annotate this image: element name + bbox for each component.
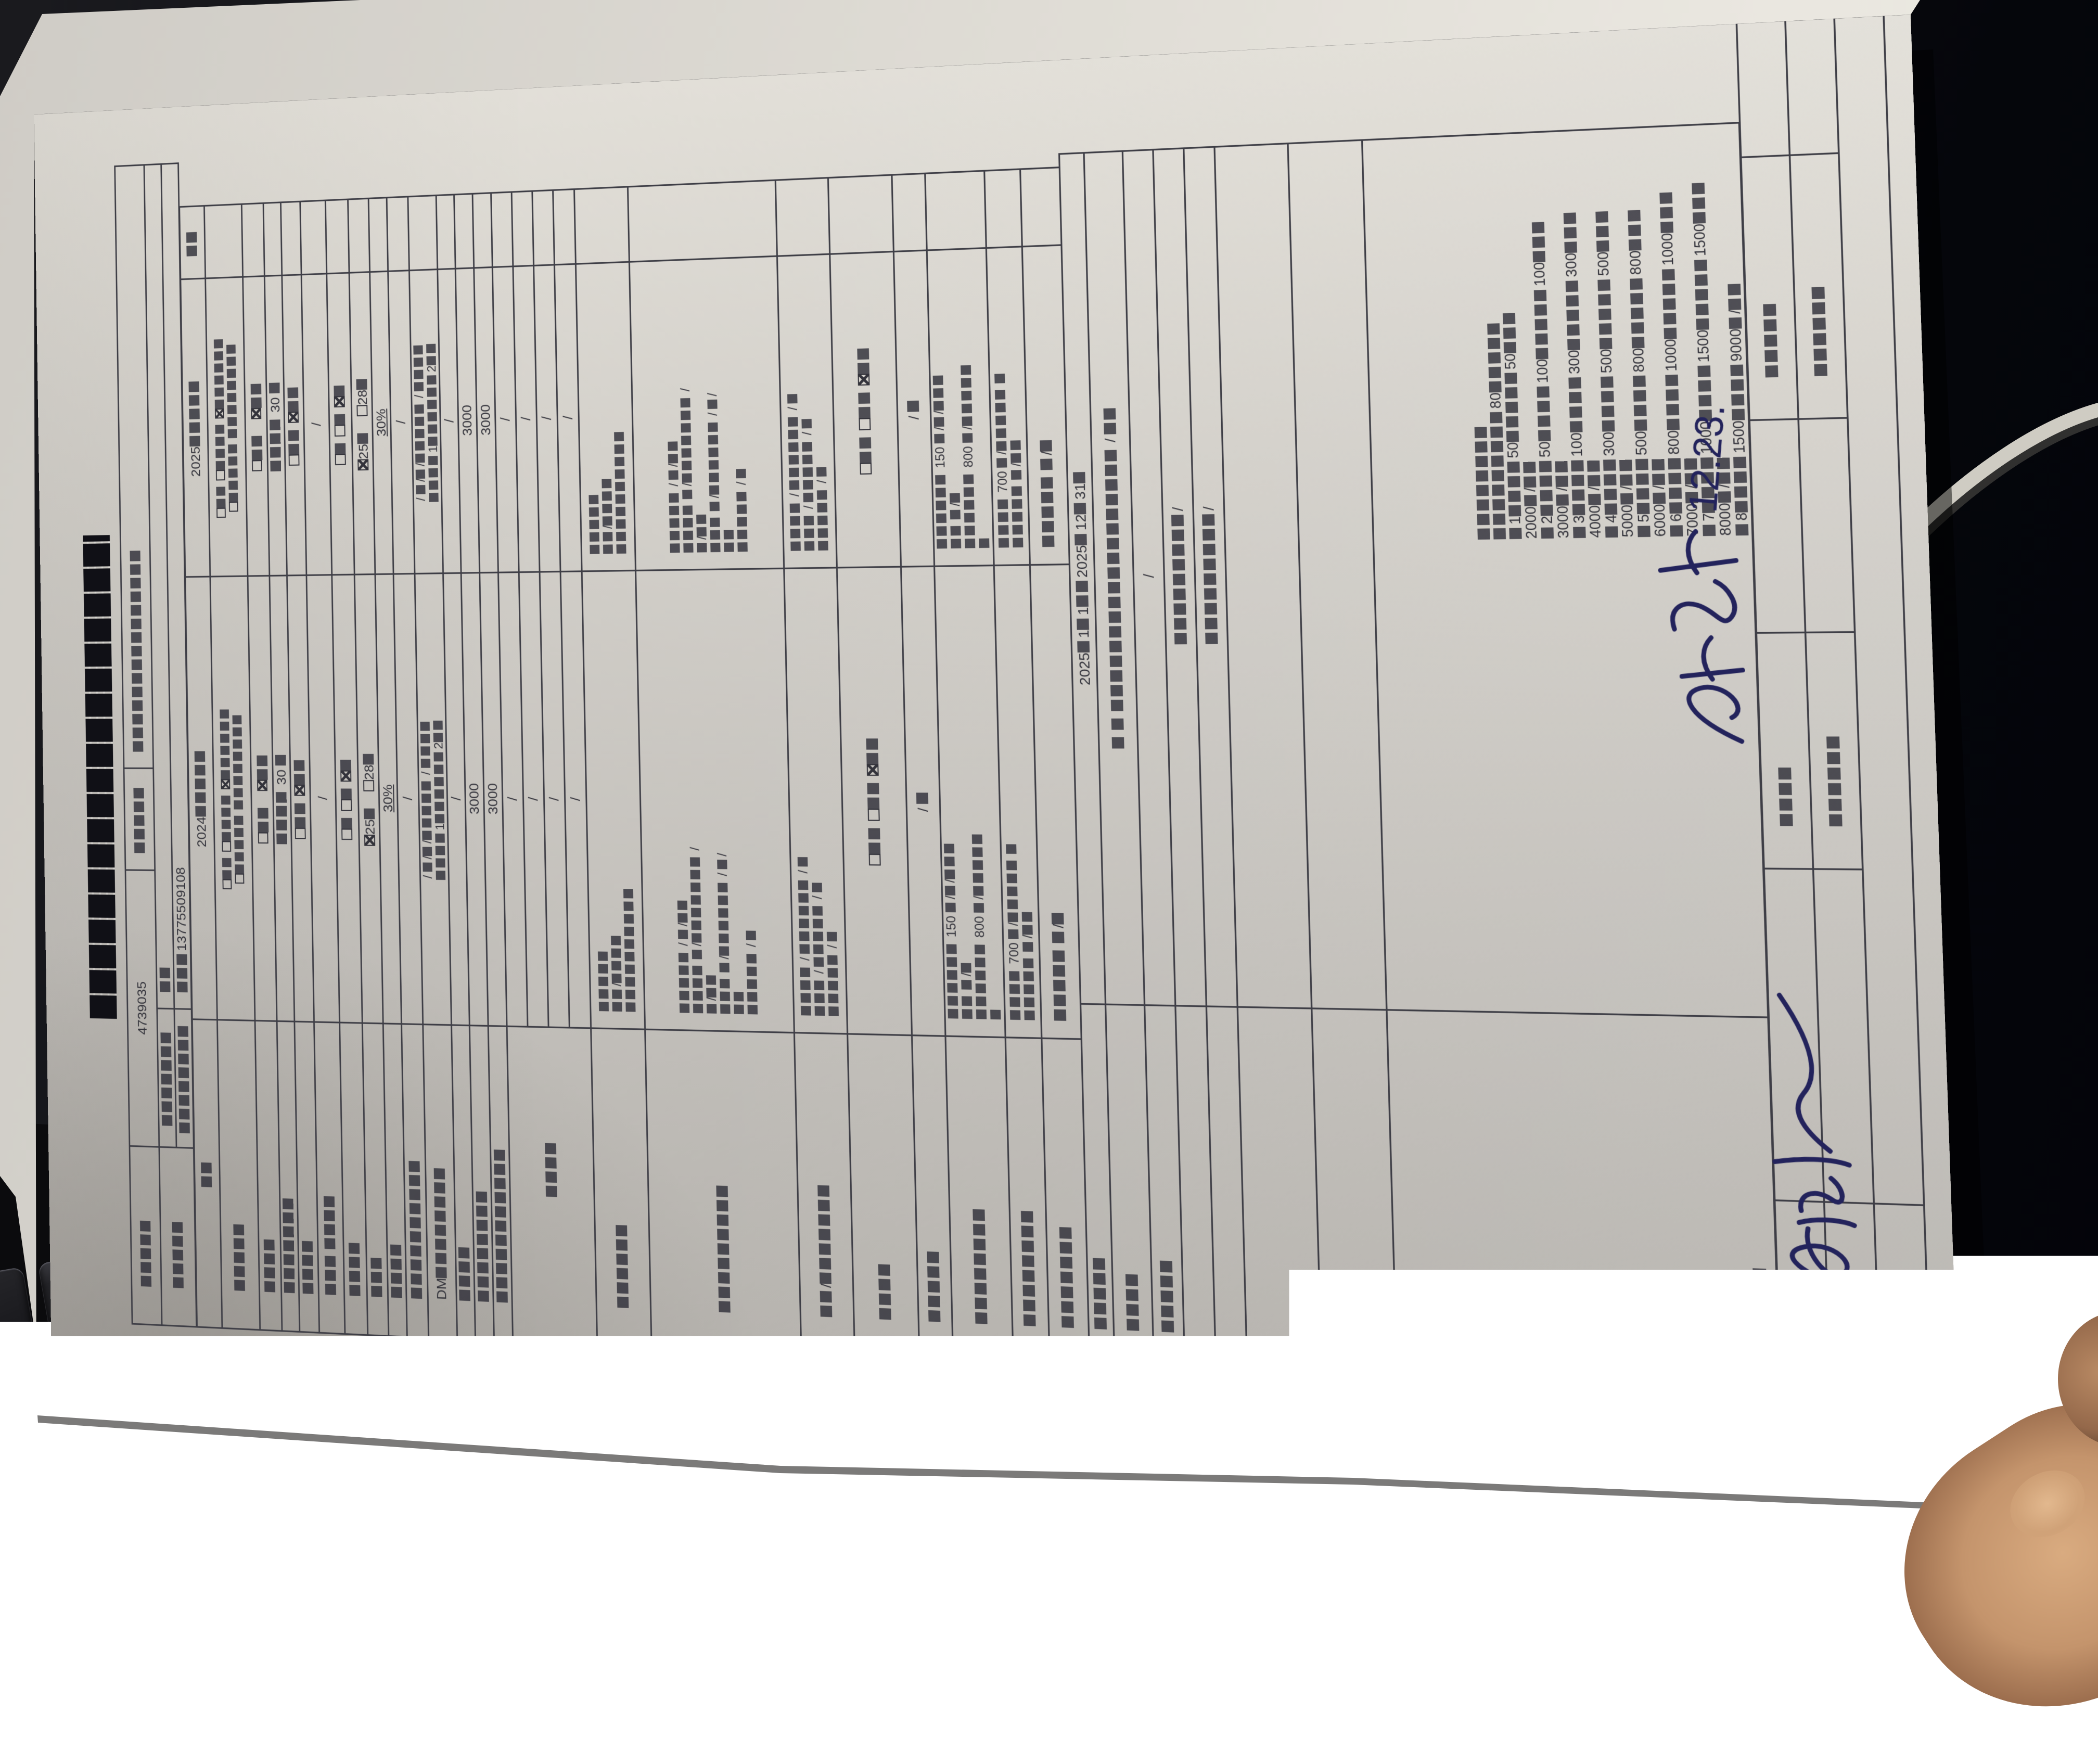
svg-text:12.23.: 12.23. [1681, 403, 1733, 514]
